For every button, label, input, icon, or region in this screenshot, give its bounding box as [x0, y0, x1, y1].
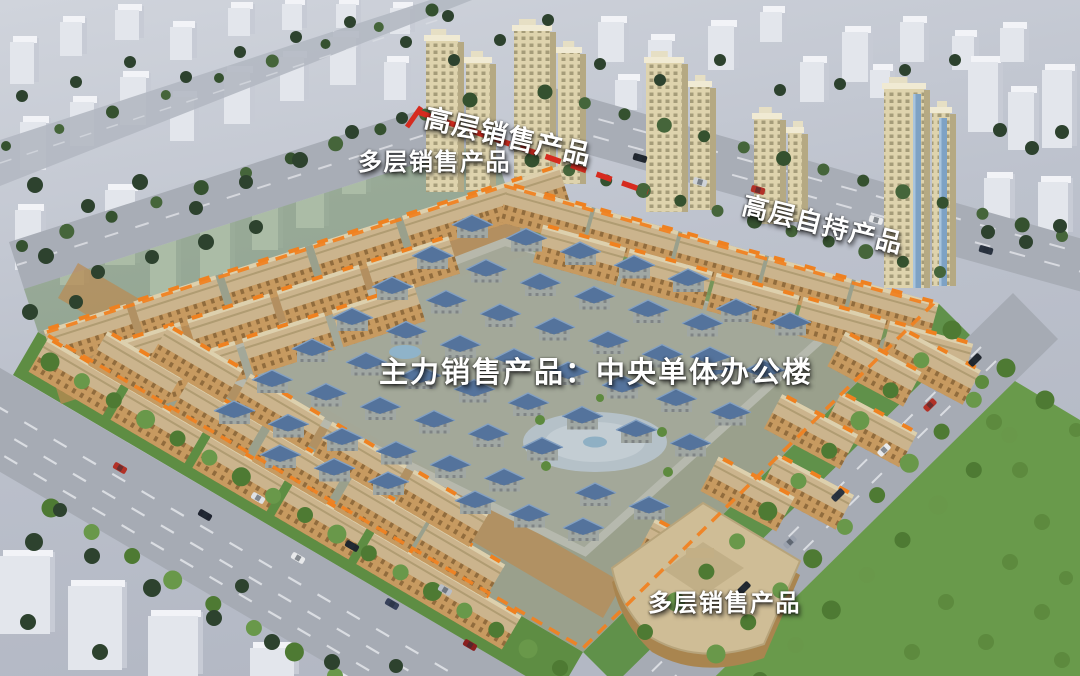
label-multistory-sale-bottom: 多层销售产品 [648, 590, 801, 616]
label-multistory-sale-top: 多层销售产品 [358, 149, 511, 175]
masterplan-rendering: 高层销售产品 多层销售产品 高层自持产品 主力销售产品：中央单体办公楼 多层销售… [0, 0, 1080, 676]
masterplan-svg [0, 0, 1080, 676]
label-main-sale: 主力销售产品：中央单体办公楼 [379, 357, 813, 389]
